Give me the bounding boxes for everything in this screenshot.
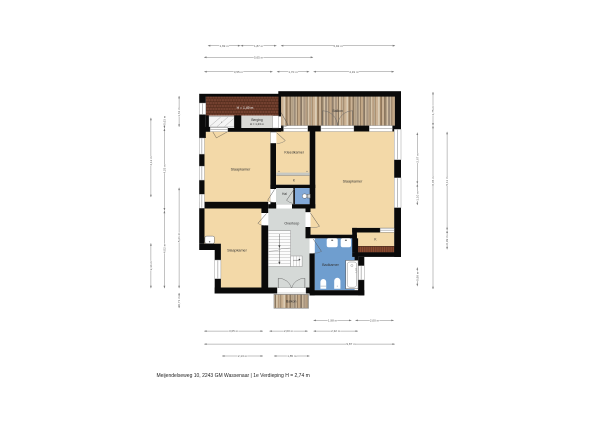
svg-text:Balkon: Balkon (286, 299, 296, 303)
svg-text:1,98 m: 1,98 m (328, 319, 338, 323)
svg-text:5,65 m: 5,65 m (254, 55, 264, 59)
svg-text:1,70 m: 1,70 m (288, 70, 298, 74)
svg-text:1,61 m: 1,61 m (177, 107, 181, 117)
svg-text:8,45 m: 8,45 m (431, 176, 435, 186)
svg-text:Slaapkamer: Slaapkamer (227, 249, 247, 253)
svg-text:Hal: Hal (282, 192, 287, 196)
svg-text:4,25 m: 4,25 m (162, 164, 166, 174)
svg-text:3,55 m: 3,55 m (234, 70, 244, 74)
svg-text:1,72: 1,72 (356, 268, 358, 273)
svg-text:0,71 m: 0,71 m (177, 296, 181, 306)
svg-text:H = 1,23 m: H = 1,23 m (250, 122, 265, 126)
svg-text:9,87 m: 9,87 m (346, 342, 356, 346)
svg-text:2,32 m: 2,32 m (331, 329, 341, 333)
svg-text:1,85 m: 1,85 m (287, 354, 297, 358)
svg-text:2,00 m: 2,00 m (370, 319, 380, 323)
svg-text:Meijendelseweg 10, 2243 GM Was: Meijendelseweg 10, 2243 GM Wassenaar | 1… (157, 373, 310, 379)
svg-text:H = 1,49 m: H = 1,49 m (237, 106, 254, 110)
svg-text:3,05 m: 3,05 m (229, 329, 239, 333)
svg-text:4,12 m: 4,12 m (149, 156, 153, 166)
svg-text:Balkon: Balkon (333, 109, 343, 113)
svg-text:1,87 m: 1,87 m (254, 44, 264, 48)
svg-text:0,63 m: 0,63 m (162, 115, 166, 125)
svg-text:Slaapkamer: Slaapkamer (231, 167, 251, 171)
svg-text:4,02 m: 4,02 m (162, 243, 166, 253)
svg-text:1,75 m: 1,75 m (431, 106, 435, 116)
svg-text:5,21 m: 5,21 m (177, 232, 181, 242)
svg-text:1,69 m: 1,69 m (220, 44, 230, 48)
svg-text:Kleedkamer: Kleedkamer (284, 151, 304, 155)
svg-text:5,92 m: 5,92 m (333, 44, 343, 48)
svg-text:4,19 m: 4,19 m (349, 70, 359, 74)
svg-text:5,11 m: 5,11 m (445, 176, 449, 185)
svg-text:2,13 m: 2,13 m (238, 354, 248, 358)
svg-text:0,99 m: 0,99 m (445, 235, 449, 245)
svg-text:1,10 m: 1,10 m (415, 191, 419, 201)
svg-text:2,00 m: 2,00 m (284, 329, 294, 333)
svg-text:2,34 m: 2,34 m (149, 261, 153, 271)
svg-text:0,99 m: 0,99 m (415, 271, 419, 281)
svg-text:Overloop: Overloop (284, 221, 299, 225)
svg-text:Slaapkamer: Slaapkamer (343, 179, 363, 183)
svg-text:Badkamer: Badkamer (322, 263, 340, 267)
svg-text:2,67 m: 2,67 m (415, 153, 419, 163)
